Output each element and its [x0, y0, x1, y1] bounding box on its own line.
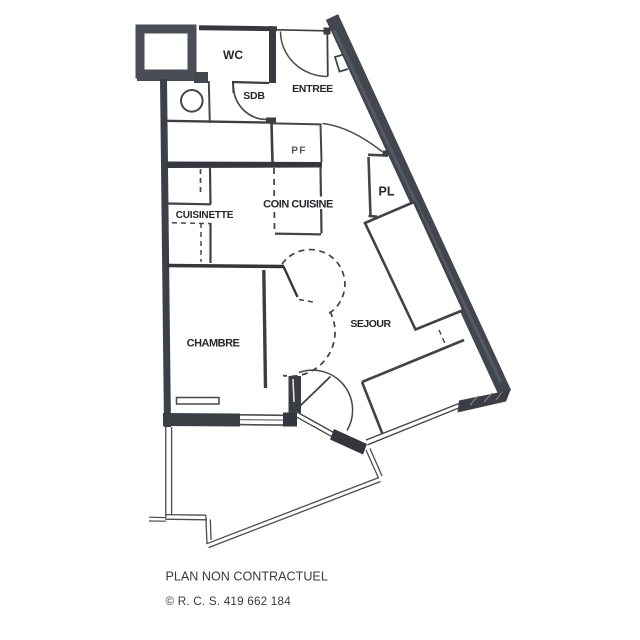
svg-text:SEJOUR: SEJOUR — [350, 318, 391, 330]
svg-text:WC: WC — [223, 48, 243, 62]
svg-text:CHAMBRE: CHAMBRE — [187, 337, 240, 349]
svg-text:ENTREE: ENTREE — [292, 83, 333, 95]
svg-text:COIN CUISINE: COIN CUISINE — [263, 198, 333, 210]
svg-text:CUISINETTE: CUISINETTE — [176, 210, 234, 221]
svg-text:PL: PL — [379, 185, 395, 199]
svg-text:PF: PF — [291, 146, 306, 157]
svg-text:SDB: SDB — [243, 90, 265, 102]
svg-text:© R. C. S. 419 662 184: © R. C. S. 419 662 184 — [166, 595, 292, 608]
svg-text:PLAN NON CONTRACTUEL: PLAN NON CONTRACTUEL — [166, 570, 328, 584]
